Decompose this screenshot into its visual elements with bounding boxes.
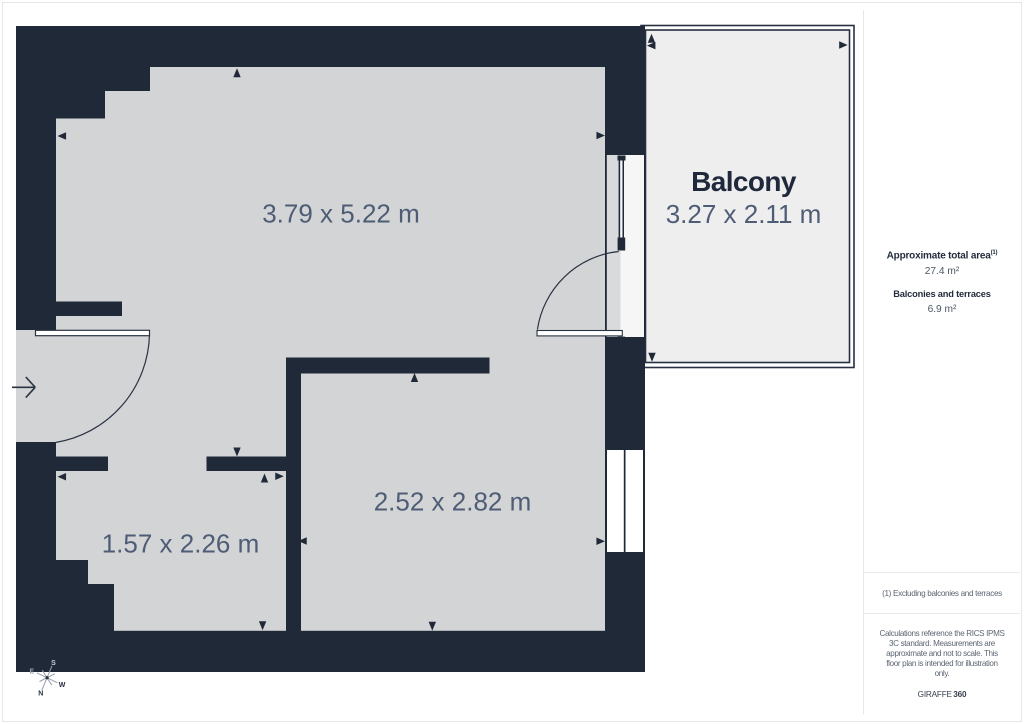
svg-text:N: N bbox=[38, 691, 43, 698]
svg-text:Balcony: Balcony bbox=[691, 166, 797, 197]
svg-text:E: E bbox=[29, 669, 34, 676]
svg-text:S: S bbox=[51, 660, 56, 667]
svg-text:2.52 x 2.82 m: 2.52 x 2.82 m bbox=[374, 487, 532, 517]
svg-text:3.27 x 2.11 m: 3.27 x 2.11 m bbox=[666, 199, 822, 229]
svg-text:3.79 x 5.22 m: 3.79 x 5.22 m bbox=[262, 199, 420, 229]
svg-text:1.57 x 2.26 m: 1.57 x 2.26 m bbox=[102, 529, 260, 559]
svg-text:W: W bbox=[59, 682, 66, 689]
